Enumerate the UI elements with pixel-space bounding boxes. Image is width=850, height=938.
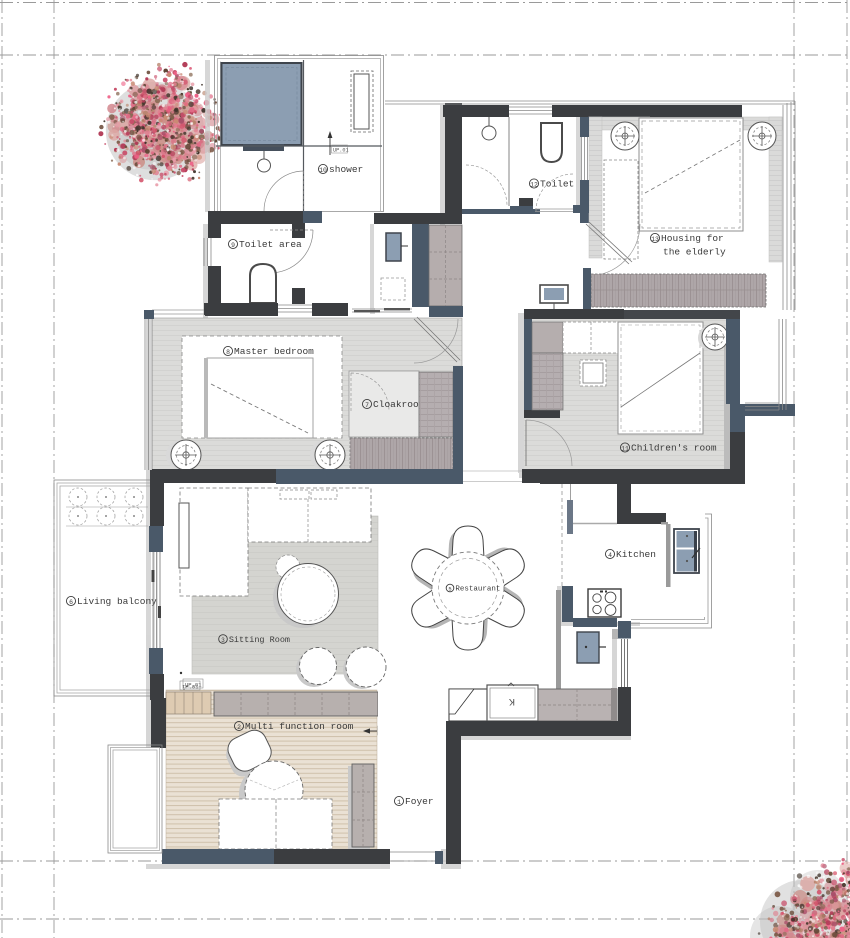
svg-text:shower: shower	[329, 164, 363, 175]
svg-text:Foyer: Foyer	[405, 796, 434, 807]
svg-text:5: 5	[448, 586, 451, 593]
svg-text:Toilet area: Toilet area	[239, 239, 302, 250]
svg-text:UP.01: UP.01	[333, 148, 349, 154]
svg-text:Kitchen: Kitchen	[616, 549, 656, 560]
svg-text:9: 9	[231, 242, 235, 249]
svg-text:Restaurant: Restaurant	[455, 586, 500, 594]
svg-text:Sitting Room: Sitting Room	[229, 635, 290, 645]
svg-text:IP.01: IP.01	[182, 684, 199, 691]
svg-text:Multi function room: Multi function room	[245, 721, 354, 732]
svg-text:4: 4	[608, 552, 612, 559]
svg-text:Living balcony: Living balcony	[77, 596, 157, 607]
svg-text:10: 10	[319, 167, 327, 174]
svg-text:Cloakroom: Cloakroom	[373, 399, 425, 410]
svg-text:7: 7	[365, 402, 369, 409]
svg-text:Master bedroom: Master bedroom	[234, 346, 314, 357]
svg-text:Housing for: Housing for	[661, 233, 724, 244]
svg-text:11: 11	[621, 446, 629, 453]
svg-text:Children's room: Children's room	[631, 443, 717, 454]
svg-text:3: 3	[221, 637, 225, 644]
svg-text:1: 1	[397, 799, 401, 806]
svg-text:13: 13	[651, 236, 659, 243]
svg-text:2: 2	[237, 724, 241, 731]
svg-text:K: K	[509, 695, 515, 706]
svg-text:8: 8	[226, 349, 230, 356]
svg-text:the elderly: the elderly	[663, 247, 726, 258]
svg-text:12: 12	[530, 182, 538, 189]
svg-text:Toilet: Toilet	[540, 179, 574, 190]
svg-text:6: 6	[69, 599, 73, 606]
